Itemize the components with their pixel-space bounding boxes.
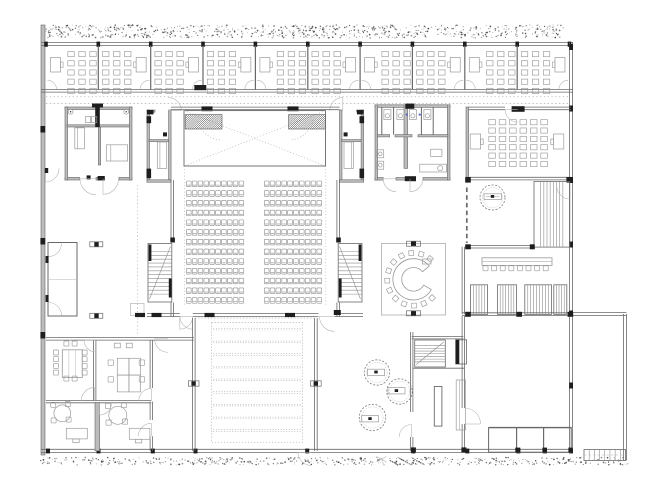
stage-right-block: [330, 98, 364, 183]
auditorium-walls: [147, 180, 363, 331]
seminar-room: [462, 247, 573, 317]
av-stair-block: [399, 332, 466, 452]
classroom-east: [465, 106, 572, 182]
entrance-foyer: [45, 168, 145, 336]
wc-block: [375, 104, 450, 192]
corridor-north: [46, 97, 569, 104]
site-landscape: [40, 24, 628, 465]
classroom-wing-north: [41, 46, 573, 94]
round-table-room: [382, 241, 446, 316]
east-landing: [465, 182, 570, 250]
apartment-block: [65, 104, 132, 195]
east-hall: [462, 316, 572, 452]
multipurpose-hall: [188, 318, 321, 451]
floor-plan-page: [0, 0, 670, 503]
floor-plan-svg: [0, 0, 670, 503]
offices-southwest: [46, 338, 194, 451]
stage-left-block: [147, 98, 182, 183]
stair-west: [148, 244, 172, 303]
auditorium-seating: [186, 181, 321, 303]
stair-east-of-hall: [338, 244, 362, 303]
